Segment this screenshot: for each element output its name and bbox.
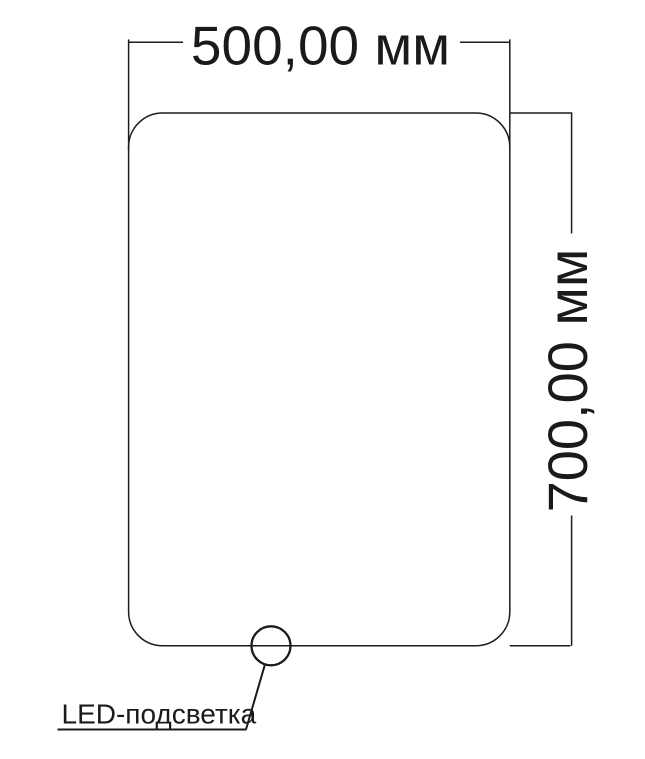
- svg-text:LED-подсветка: LED-подсветка: [62, 699, 257, 730]
- svg-text:500,00 мм: 500,00 мм: [191, 15, 450, 77]
- svg-text:700,00 мм: 700,00 мм: [536, 249, 599, 513]
